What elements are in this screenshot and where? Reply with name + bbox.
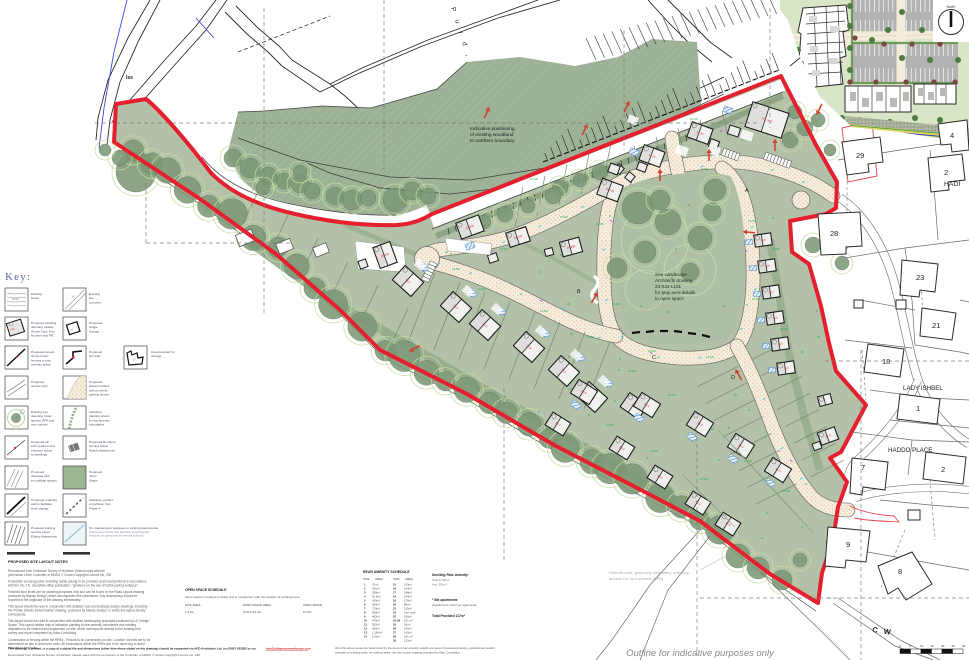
svg-text:to northern boundary: to northern boundary <box>470 138 515 144</box>
svg-text:21.500: 21.500 <box>586 335 594 339</box>
svg-text:access for root spread (RPA): access for root spread (RPA) <box>609 577 663 581</box>
svg-text:30: 30 <box>962 644 966 648</box>
svg-text:Historic wall, generally degra: Historic wall, generally degraded, allow… <box>609 571 689 575</box>
svg-text:Outline for indicative purpose: Outline for indicative purposes only <box>626 648 775 659</box>
svg-text:Total 0.46 Ha: Total 0.46 Ha <box>243 610 261 614</box>
svg-text:to dwellings: to dwellings <box>31 453 48 457</box>
svg-text:with the d.E.T.R. round/tele o: with the d.E.T.R. round/tele office publ… <box>8 583 138 587</box>
svg-text:link wall: link wall <box>89 354 100 358</box>
svg-text:23.400: 23.400 <box>612 302 620 306</box>
svg-text:7: 7 <box>861 463 865 472</box>
svg-text:AREA: AREA <box>375 577 383 581</box>
svg-text:Total Provided 117m²: Total Provided 117m² <box>432 614 466 618</box>
svg-text:amenity areas: amenity areas <box>31 363 51 367</box>
svg-text:structures as agreed with the: structures as agreed with the relevant a… <box>89 534 144 538</box>
svg-text:C: C <box>652 355 656 361</box>
svg-text:1: 1 <box>916 404 920 413</box>
svg-text:AREA: AREA <box>405 577 413 581</box>
svg-text:15.8%: 15.8% <box>303 610 312 614</box>
svg-text:24.050: 24.050 <box>748 219 756 223</box>
svg-text:contours: contours <box>89 300 101 304</box>
svg-text:in-curtilage spaces: in-curtilage spaces <box>31 478 57 482</box>
svg-text:18.4: 18.4 <box>783 366 789 371</box>
svg-text:21: 21 <box>932 321 940 330</box>
svg-text:18.9: 18.9 <box>760 238 766 243</box>
svg-text:This drawing, if printed, is a: This drawing, if printed, is a copy of a… <box>8 647 256 651</box>
svg-text:Total 9,440m²: Total 9,440m² <box>432 578 450 582</box>
svg-text:4: 4 <box>950 131 954 140</box>
svg-text:18.8: 18.8 <box>764 264 770 269</box>
svg-text:See Landscape: See Landscape <box>655 272 687 277</box>
svg-text:14: 14 <box>364 635 368 639</box>
svg-text:24.600: 24.600 <box>700 167 708 171</box>
svg-text:* 55s apartments: * 55s apartments <box>432 598 458 602</box>
svg-text:Elderly Apartments: Elderly Apartments <box>31 534 57 538</box>
svg-text:5m maintenance wayleave to exi: 5m maintenance wayleave to existing wate… <box>89 526 158 530</box>
svg-text:HADDO PLACE: HADDO PLACE <box>888 447 932 454</box>
svg-text:boundaries: boundaries <box>89 423 105 427</box>
svg-text:(requirement: 10m² per apartme: (requirement: 10m² per apartment) <box>432 603 476 607</box>
svg-text:North: North <box>947 5 956 9</box>
svg-text:Elderly Apartments: Elderly Apartments <box>89 448 115 452</box>
svg-text:tree number: tree number <box>31 423 48 427</box>
svg-text:23.100: 23.100 <box>752 297 760 301</box>
svg-text:29: 29 <box>856 151 864 160</box>
svg-text:canopies of existing trees, as: canopies of existing trees, as outlined … <box>335 651 460 655</box>
svg-text:REAR AMENITY SCHEDULE: REAR AMENITY SCHEDULE <box>363 570 410 574</box>
svg-text:SITE: SITE <box>363 577 369 581</box>
svg-text:(maintenance access strip kept: (maintenance access strip kept clear of … <box>89 530 149 534</box>
svg-text:Space: Space <box>89 478 98 482</box>
svg-text:Key:: Key: <box>5 271 31 283</box>
svg-text:22.400: 22.400 <box>478 287 486 291</box>
svg-text:Garage: Garage <box>89 329 100 333</box>
svg-text:LADY ISHBEL: LADY ISHBEL <box>903 385 943 392</box>
svg-text:18.900: 18.900 <box>772 247 780 251</box>
svg-text:parking shown: parking shown <box>89 393 109 397</box>
svg-text:23.300: 23.300 <box>500 247 508 251</box>
svg-text:info@aldapertersandesign.com: info@aldapertersandesign.com <box>266 647 311 651</box>
svg-text:25: 25 <box>952 644 956 648</box>
svg-text:23-034-L101: 23-034-L101 <box>655 284 681 289</box>
svg-text:23: 23 <box>916 273 924 282</box>
svg-text:2.9 Ha: 2.9 Ha <box>185 610 194 614</box>
svg-text:SITE AREA: SITE AREA <box>185 603 201 607</box>
svg-text:28: 28 <box>830 229 838 238</box>
svg-text:levels: levels <box>31 296 39 300</box>
svg-text:18.7: 18.7 <box>768 290 774 295</box>
svg-text:25.100: 25.100 <box>690 117 698 121</box>
svg-text:18.400: 18.400 <box>700 477 708 481</box>
svg-text:storage: storage <box>151 354 162 358</box>
svg-text:21.900: 21.900 <box>540 309 548 313</box>
svg-text:130m²: 130m² <box>372 635 380 639</box>
svg-text:D: D <box>731 375 735 381</box>
svg-text:Number and FFL: Number and FFL <box>31 334 55 338</box>
svg-text:20.400: 20.400 <box>668 393 676 397</box>
svg-text:2: 2 <box>944 168 948 177</box>
svg-text:15: 15 <box>931 644 935 648</box>
svg-text:Indicative positioning: Indicative positioning <box>470 126 515 132</box>
svg-text:permission of the Controller o: permission of the Controller of HMSO © C… <box>8 573 111 577</box>
svg-text:PROPOSED SITE LAYOUT NOTES: PROPOSED SITE LAYOUT NOTES <box>8 560 68 564</box>
svg-text:reported to the originator of: reported to the originator of the drawin… <box>8 598 81 602</box>
svg-text:survey and report completed by: survey and report completed by Arbor Con… <box>8 631 77 635</box>
svg-text:corresponds.: corresponds. <box>8 613 26 617</box>
svg-text:23.900: 23.900 <box>560 215 568 219</box>
svg-text:19.000: 19.000 <box>650 449 658 453</box>
svg-text:22.500: 22.500 <box>706 355 714 359</box>
svg-text:9: 9 <box>846 540 850 549</box>
svg-text:B: B <box>577 289 581 295</box>
svg-text:HADI: HADI <box>944 181 960 188</box>
svg-text:A: A <box>745 188 749 194</box>
svg-text:20.900: 20.900 <box>628 369 636 373</box>
svg-text:OPEN SPACE SCHEDULE: OPEN SPACE SCHEDULE <box>185 588 227 592</box>
svg-text:Avg. 391m²: Avg. 391m² <box>432 583 447 587</box>
svg-text:All of the above areas are det: All of the above areas are determined by… <box>335 646 495 650</box>
svg-text:18.5: 18.5 <box>777 342 783 347</box>
svg-text:18.700: 18.700 <box>782 489 790 493</box>
svg-text:18: 18 <box>882 357 890 366</box>
svg-text:Dwelling Rear Amenity:: Dwelling Rear Amenity: <box>432 573 469 577</box>
svg-text:18.6: 18.6 <box>772 316 778 321</box>
svg-text:Architects drawing: Architects drawing <box>655 278 693 283</box>
svg-text:service strip: service strip <box>31 384 48 388</box>
svg-text:22.800: 22.800 <box>452 267 460 271</box>
svg-text:OPEN SPACE AREA: OPEN SPACE AREA <box>243 603 271 607</box>
svg-text:52.00: 52.00 <box>12 297 19 301</box>
svg-text:Phase 4: Phase 4 <box>89 506 101 510</box>
svg-text:29: 29 <box>393 639 397 643</box>
svg-text:19.600: 19.600 <box>606 423 614 427</box>
svg-text:SITE: SITE <box>393 577 399 581</box>
svg-text:the Private Streets Determinat: the Private Streets Determination drawin… <box>8 609 146 613</box>
svg-text:of existing woodland: of existing woodland <box>470 132 514 138</box>
svg-text:18.300: 18.300 <box>780 327 788 331</box>
svg-text:for play area details: for play area details <box>655 290 696 295</box>
svg-text:Open space is located centrall: Open space is located centrally and in c… <box>185 595 300 599</box>
svg-text:Reproduced from Ordnance Surve: Reproduced from Ordnance Survey of North… <box>8 653 200 657</box>
svg-text:20: 20 <box>941 644 945 648</box>
svg-text:level change: level change <box>31 506 49 510</box>
svg-text:132m²: 132m² <box>404 639 412 643</box>
svg-text:to open space: to open space <box>655 296 684 301</box>
svg-text:24.150: 24.150 <box>596 222 604 226</box>
svg-text:22.900: 22.900 <box>648 349 656 353</box>
svg-text:OPEN SPACE: OPEN SPACE <box>303 603 322 607</box>
svg-text:8: 8 <box>898 567 902 576</box>
svg-text:10: 10 <box>920 644 924 648</box>
svg-text:Iss: Iss <box>126 75 133 81</box>
svg-text:24.200: 24.200 <box>530 177 538 181</box>
svg-text:2: 2 <box>941 465 945 474</box>
